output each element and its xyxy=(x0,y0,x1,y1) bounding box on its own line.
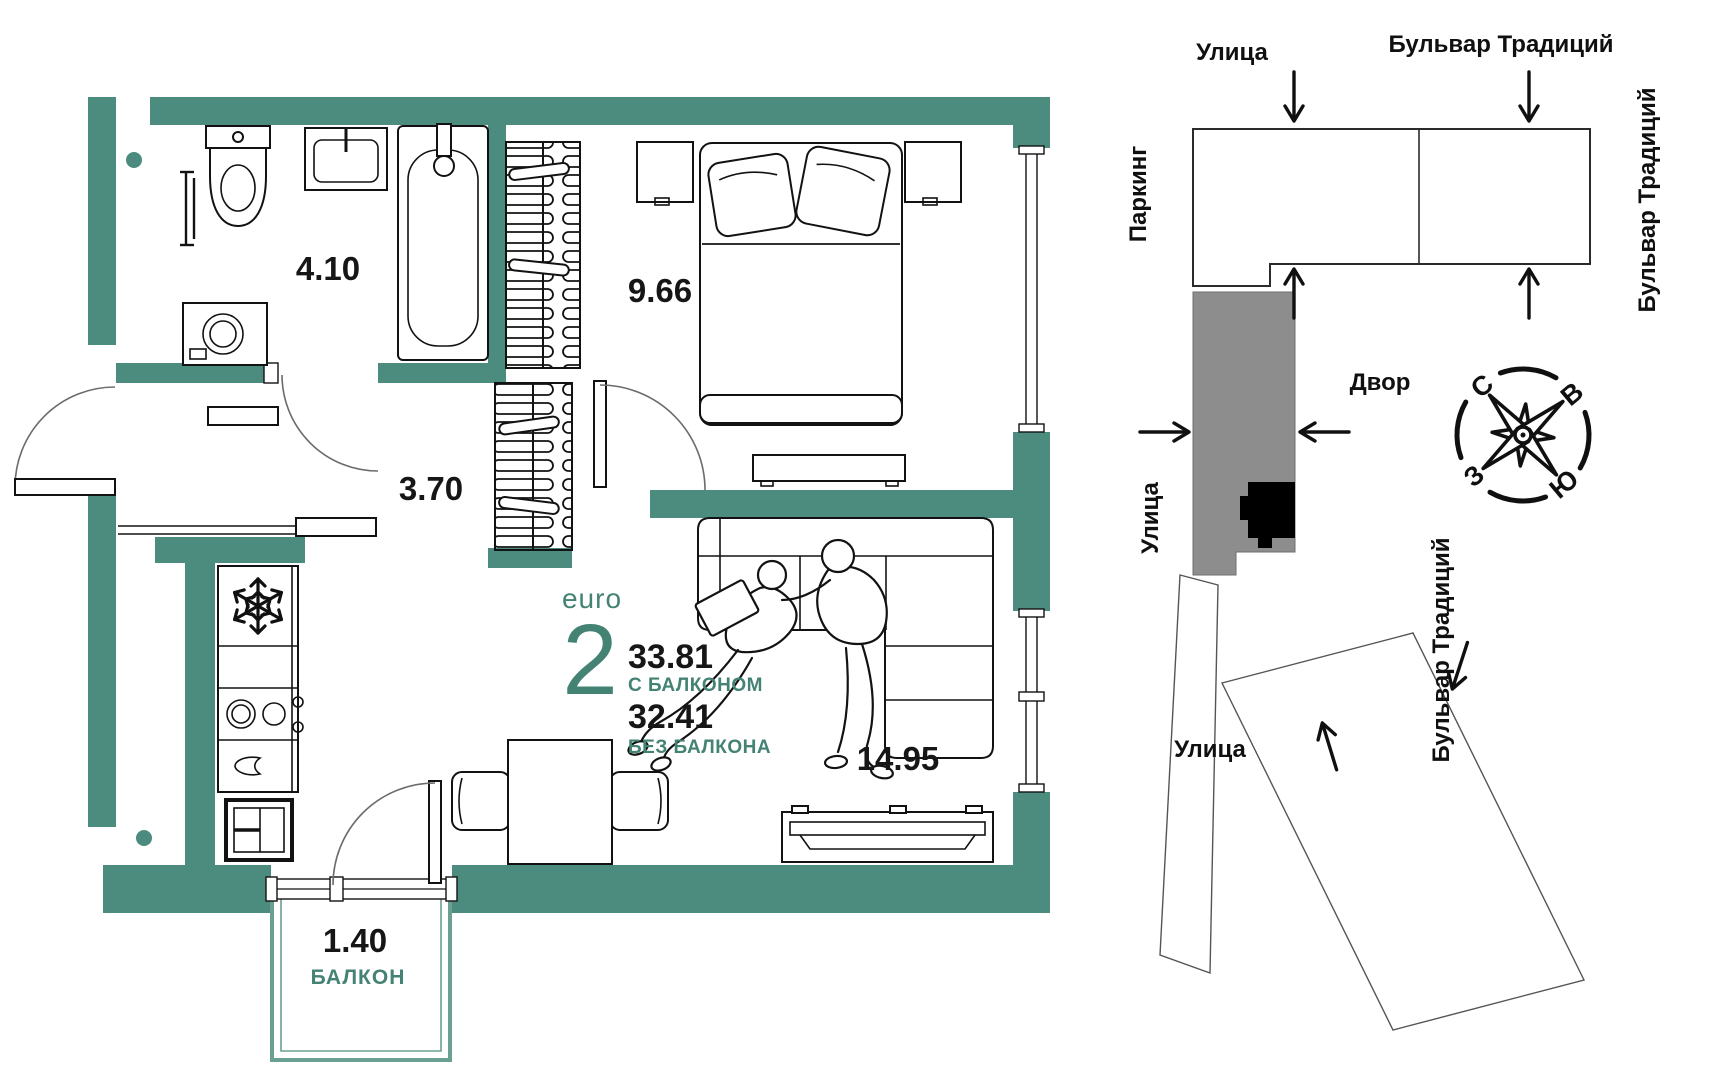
label-street-top: Улица xyxy=(1196,39,1268,66)
area-with-balcony: 33.81 xyxy=(628,638,713,676)
wall-kitchen-left xyxy=(185,560,215,865)
toilet-button xyxy=(233,132,243,142)
wall-bath-bottom-right xyxy=(378,363,506,383)
arrow-down-icon xyxy=(1285,72,1303,121)
with-balcony-label: С БАЛКОНОМ xyxy=(628,675,763,696)
arrow-right-icon xyxy=(1140,423,1189,441)
without-balcony-label: БЕЗ БАЛКОНА xyxy=(628,737,771,758)
entrance-door-arc xyxy=(15,387,115,487)
area-hallway: 3.70 xyxy=(399,470,463,507)
nightstand-left xyxy=(637,142,693,202)
label-boulevard-bottom-right: Бульвар Традиций xyxy=(1428,537,1455,762)
doors xyxy=(15,363,705,536)
area-bathroom: 4.10 xyxy=(296,250,360,287)
label-parking: Паркинг xyxy=(1125,146,1152,243)
area-balcony: 1.40 xyxy=(323,922,387,959)
arrow-down-icon xyxy=(1520,72,1538,121)
site-building-bottom xyxy=(1222,633,1584,1030)
wall-living-partition xyxy=(650,490,1013,518)
balcony-door-arc xyxy=(333,783,435,885)
washing-machine xyxy=(183,303,267,365)
arrow-left-icon xyxy=(1300,423,1349,441)
hall-door-leaf xyxy=(208,407,278,425)
site-road-strip xyxy=(1160,575,1218,973)
towel-rail xyxy=(180,172,194,245)
bedroom-desk xyxy=(753,455,905,481)
balcony-door-leaf xyxy=(429,781,441,883)
wall-left-lower xyxy=(88,490,116,827)
kitchen-slider-leaf xyxy=(296,518,376,536)
entrance-door-leaf xyxy=(15,479,115,495)
rooms-count: 2 xyxy=(562,604,618,716)
wall-left-upper xyxy=(88,97,116,345)
balcony xyxy=(266,781,457,1060)
nightstand-right xyxy=(905,142,961,202)
wall-bath-right xyxy=(488,125,506,365)
label-street-bottom: Улица xyxy=(1174,736,1246,763)
balcony-label: БАЛКОН xyxy=(311,966,406,989)
wall-top xyxy=(150,97,1050,125)
label-boulevard-top: Бульвар Традиций xyxy=(1388,31,1613,58)
bathroom-door-arc xyxy=(282,375,378,471)
wall-kitchen-top xyxy=(155,537,305,563)
bedroom-door-arc xyxy=(600,385,705,490)
area-without-balcony: 32.41 xyxy=(628,698,713,736)
dining-set xyxy=(452,740,668,864)
wardrobes xyxy=(495,142,580,550)
site-plan: С В Ю З Улица Бульвар Традиций Паркинг Б… xyxy=(1125,31,1661,1030)
label-street-left: Улица xyxy=(1137,481,1164,553)
arrow-up-icon xyxy=(1520,269,1538,318)
floor-plan: 4.10 9.66 3.70 14.95 1.40 БАЛКОН euro 2 … xyxy=(15,97,1050,1060)
toilet-bowl xyxy=(210,148,266,226)
area-bedroom: 9.66 xyxy=(628,272,692,309)
label-boulevard-right: Бульвар Традиций xyxy=(1634,87,1661,312)
bathtub-tap xyxy=(437,124,451,156)
bedroom-door-leaf xyxy=(594,381,606,487)
wall-bottom-right xyxy=(452,865,1050,913)
compass-icon: С В Ю З xyxy=(1450,362,1597,509)
wall-bottom-left xyxy=(103,865,271,913)
bedroom-window xyxy=(1013,148,1050,432)
dining-table xyxy=(508,740,612,864)
kitchen-units xyxy=(218,566,303,860)
floorplan-page: 4.10 9.66 3.70 14.95 1.40 БАЛКОН euro 2 … xyxy=(0,0,1723,1080)
column-dot-top xyxy=(126,152,142,168)
column-dot-bottom xyxy=(136,830,152,846)
site-building-top xyxy=(1193,129,1590,286)
bedroom-furniture xyxy=(637,142,961,486)
plan-canvas: 4.10 9.66 3.70 14.95 1.40 БАЛКОН euro 2 … xyxy=(0,0,1723,1080)
area-living: 14.95 xyxy=(857,740,940,777)
label-courtyard: Двор xyxy=(1350,369,1411,396)
tv-stand xyxy=(782,812,993,862)
bathroom-fixtures xyxy=(180,124,488,365)
